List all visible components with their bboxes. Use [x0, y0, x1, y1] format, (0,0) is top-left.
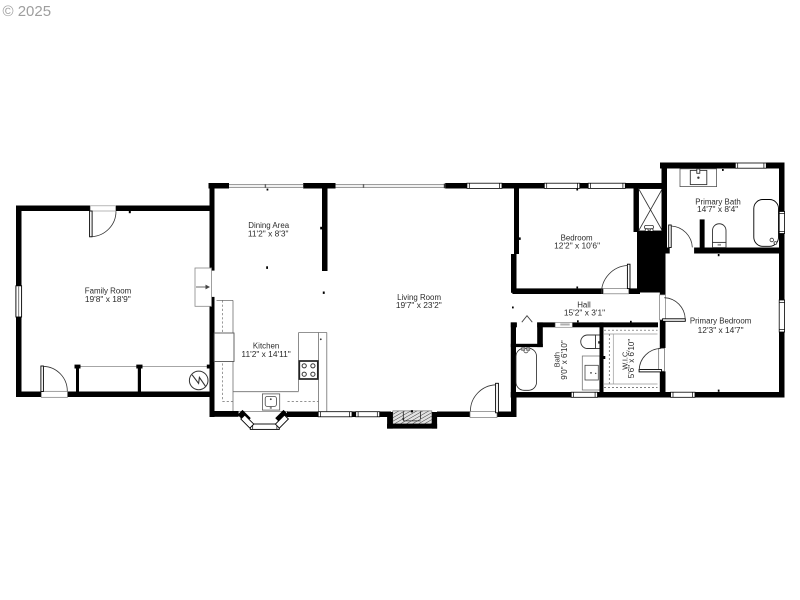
svg-text:14'7" x 8'4": 14'7" x 8'4": [697, 204, 738, 214]
svg-text:12'2" x 10'6": 12'2" x 10'6": [554, 240, 600, 250]
svg-text:© 2025: © 2025: [3, 3, 52, 20]
svg-text:19'8" x 18'9": 19'8" x 18'9": [85, 294, 131, 304]
svg-text:11'2" x 8'3": 11'2" x 8'3": [248, 229, 289, 239]
svg-text:19'7" x 23'2": 19'7" x 23'2": [396, 300, 442, 310]
svg-text:15'2" x 3'1": 15'2" x 3'1": [564, 307, 605, 317]
svg-text:9'0" x 6'10": 9'0" x 6'10": [560, 340, 569, 380]
svg-text:11'2" x 14'11": 11'2" x 14'11": [241, 349, 290, 359]
svg-text:5'6" x 6'10": 5'6" x 6'10": [627, 339, 636, 379]
svg-text:12'3" x 14'7": 12'3" x 14'7": [698, 325, 744, 335]
